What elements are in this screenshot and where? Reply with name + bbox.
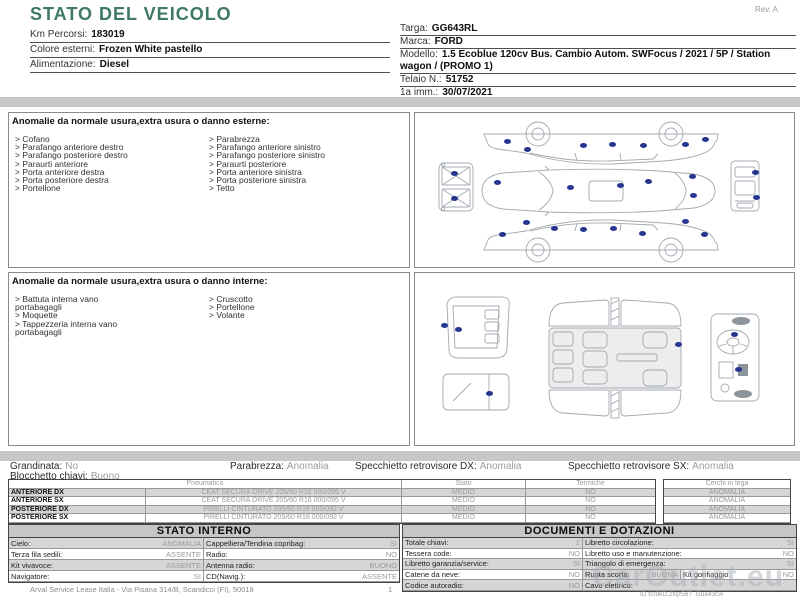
tyre-spec: PIRELLI CINTURATO 205/60 R16 000/092 V xyxy=(146,514,402,523)
damage-dot xyxy=(486,391,493,396)
field-label: Colore esterni: xyxy=(30,44,95,55)
anomaly-item: Portellone xyxy=(15,184,128,192)
field-libretto-uso: Libretto uso e manutenzione:NO xyxy=(583,549,796,559)
field-label: Libretto uso e manutenzione: xyxy=(585,549,682,558)
damage-dot xyxy=(455,327,462,332)
internal-anomalies-col2: Cruscotto Portellone Volante xyxy=(209,295,255,320)
field-marca: Marca:FORD xyxy=(400,36,796,49)
tyre-termiche: NO xyxy=(526,514,655,523)
field-libretto-garanzia: Libretto garanzia/service:SI xyxy=(403,559,583,569)
field-totale-chiavi: Totale chiavi:2 xyxy=(403,538,583,548)
field-radio: Radio:NO xyxy=(204,549,399,559)
damage-dot xyxy=(580,143,587,148)
field-label: Terza fila sedili: xyxy=(11,550,62,559)
table-row: Tessera code:NO Libretto uso e manutenzi… xyxy=(403,549,796,560)
tyre-position: ANTERIORE DX xyxy=(9,489,146,498)
tyre-spec: CEAT SECURA DRIVE 205/60 R16 000/095 V xyxy=(146,489,402,498)
anomaly-item: Tappezzeria interna vano portabagagli xyxy=(15,320,147,336)
field-value: Anomalia xyxy=(692,461,734,472)
field-value: NO xyxy=(783,549,794,558)
field-value: SI xyxy=(194,572,201,581)
field-label: Cielo: xyxy=(11,539,30,548)
field-terza-fila: Terza fila sedili:ASSENTE xyxy=(9,549,204,559)
field-label: Alimentazione: xyxy=(30,59,96,70)
document-id-note: ID tcr9kD.2fqz567 .Gua43cw xyxy=(640,591,723,598)
divider-bar xyxy=(0,97,800,107)
field-label: Km Percorsi: xyxy=(30,29,87,40)
damage-dot xyxy=(580,227,587,232)
field-cd-navig: CD(Navig.):ASSENTE xyxy=(204,571,399,581)
table-row: Cielo:ANOMALIA Cappelliera/Tendina copri… xyxy=(9,538,399,549)
damage-dot xyxy=(735,367,742,372)
damage-dot xyxy=(504,139,511,144)
cerchi-in-lega-table: Cerchi in lega ANOMALIA ANOMALIA ANOMALI… xyxy=(663,479,791,524)
field-tessera-code: Tessera code:NO xyxy=(403,549,583,559)
field-value: ASSENTE xyxy=(362,572,397,581)
car-interior-diagram-icon xyxy=(415,273,794,445)
field-modello: Modello:1.5 Ecoblue 120cv Bus. Cambio Au… xyxy=(400,49,796,74)
stato-interno-header: STATO INTERNO xyxy=(9,525,399,538)
field-label: Catene da neve: xyxy=(405,570,460,579)
field-value: NO xyxy=(569,549,580,558)
damage-dot xyxy=(524,147,531,152)
external-anomalies-col1: Cofano Parafango anteriore destro Parafa… xyxy=(15,135,128,192)
field-value: GG643RL xyxy=(432,23,478,34)
field-label: Totale chiavi: xyxy=(405,538,448,547)
tyre-position: POSTERIORE SX xyxy=(9,514,146,523)
internal-anomalies-col1: Battuta interna vano portabagagli Moquet… xyxy=(15,295,147,336)
exterior-damage-diagram xyxy=(414,112,795,268)
caroutlet-watermark: CarOutlet.eu xyxy=(592,560,784,594)
field-catene-neve: Catene da neve:NO xyxy=(403,570,583,580)
car-exterior-diagram-icon xyxy=(415,113,794,267)
field-navigatore: Navigatore:SI xyxy=(9,571,204,581)
field-telaio: Telaio N.:51752 xyxy=(400,74,796,87)
column-header-stato: Stato xyxy=(402,480,526,489)
damage-dot xyxy=(567,185,574,190)
column-header-cerchi: Cerchi in lega xyxy=(664,480,790,489)
field-label: CD(Navig.): xyxy=(206,572,245,581)
footer-company: Arval Service Lease Italia - Via Pisana … xyxy=(30,585,254,594)
page-number: 1 xyxy=(388,585,392,594)
interior-damage-diagram xyxy=(414,272,795,446)
field-value: SI xyxy=(390,539,397,548)
field-value: 183019 xyxy=(91,29,124,40)
field-label: Specchietto retrovisore SX: xyxy=(568,461,689,472)
vehicle-info-left: Km Percorsi:183019 Colore esterni:Frozen… xyxy=(30,28,390,73)
damage-dot xyxy=(752,170,759,175)
damage-dot xyxy=(639,231,646,236)
field-value: NO xyxy=(569,581,580,590)
tyre-stato: MEDIO xyxy=(402,489,526,498)
damage-dot xyxy=(702,137,709,142)
vehicle-info-right: Targa:GG643RL Marca:FORD Modello:1.5 Eco… xyxy=(400,23,796,100)
anomaly-item: Tetto xyxy=(209,184,325,192)
damage-dot xyxy=(753,195,760,200)
field-value: Anomalia xyxy=(480,461,522,472)
documenti-dotazioni-header: DOCUMENTI E DOTAZIONI xyxy=(403,525,796,538)
anomaly-item: Battuta interna vano portabagagli xyxy=(15,295,147,311)
damage-dot xyxy=(690,193,697,198)
field-label: Parabrezza: xyxy=(230,461,284,472)
cerchi-value: ANOMALIA xyxy=(664,514,790,523)
field-alimentazione: Alimentazione:Diesel xyxy=(30,58,390,73)
damage-dot xyxy=(441,323,448,328)
field-km-percorsi: Km Percorsi:183019 xyxy=(30,28,390,43)
field-label: Tessera code: xyxy=(405,549,452,558)
cerchi-value: ANOMALIA xyxy=(664,497,790,506)
tyre-termiche: NO xyxy=(526,489,655,498)
damage-dot xyxy=(675,342,682,347)
field-cappelliera: Cappelliera/Tendina copribag:SI xyxy=(204,538,399,548)
field-label: Modello: xyxy=(400,49,438,60)
tyre-termiche: NO xyxy=(526,497,655,506)
field-specchietto-dx: Specchietto retrovisore DX:Anomalia xyxy=(355,461,521,472)
tyre-position: POSTERIORE DX xyxy=(9,506,146,515)
damage-dot xyxy=(731,332,738,337)
damage-dot xyxy=(645,179,652,184)
table-row: Navigatore:SI CD(Navig.):ASSENTE xyxy=(9,571,399,582)
cerchi-value: ANOMALIA xyxy=(664,489,790,498)
field-antenna-radio: Antenna radio:BUONO xyxy=(204,560,399,570)
field-value: 51752 xyxy=(446,74,474,85)
damage-dot xyxy=(494,180,501,185)
table-row: Kit vivavoce:ASSENTE Antenna radio:BUONO xyxy=(9,560,399,571)
anomaly-item: Volante xyxy=(209,311,255,319)
external-anomalies-col2: Parabrezza Parafango anteriore sinistro … xyxy=(209,135,325,192)
field-value: NO xyxy=(783,570,794,579)
field-value: ASSENTE xyxy=(166,550,201,559)
field-label: Radio: xyxy=(206,550,228,559)
tyre-table-area: Pneumatico Stato Termiche ANTERIORE DX C… xyxy=(8,479,791,524)
field-cielo: Cielo:ANOMALIA xyxy=(9,538,204,548)
field-value: SI xyxy=(573,559,580,568)
field-value: Diesel xyxy=(100,59,129,70)
field-label: Marca: xyxy=(400,36,431,47)
vehicle-report-page: Rev. A STATO DEL VEICOLO Km Percorsi:183… xyxy=(0,0,800,600)
field-value: BUONO xyxy=(369,561,397,570)
damage-dot xyxy=(610,226,617,231)
field-targa: Targa:GG643RL xyxy=(400,23,796,36)
internal-anomalies-heading: Anomalie da normale usura,extra usura o … xyxy=(12,276,409,287)
tyre-stato: MEDIO xyxy=(402,497,526,506)
field-value: NO xyxy=(386,550,397,559)
damage-dot xyxy=(451,196,458,201)
column-header-termiche: Termiche xyxy=(526,480,655,489)
field-specchietto-sx: Specchietto retrovisore SX:Anomalia xyxy=(568,461,734,472)
tyre-stato: MEDIO xyxy=(402,506,526,515)
field-label: Codice autoradio: xyxy=(405,581,464,590)
field-value: 2 xyxy=(576,538,580,547)
field-parabrezza: Parabrezza:Anomalia xyxy=(230,461,329,472)
field-value: NO xyxy=(569,570,580,579)
damage-dot xyxy=(682,142,689,147)
tyre-termiche: NO xyxy=(526,506,655,515)
external-anomalies-heading: Anomalie da normale usura,extra usura o … xyxy=(12,116,409,127)
damage-dot xyxy=(451,171,458,176)
field-libretto-circolazione: Libretto circolazione:SI xyxy=(583,538,796,548)
field-label: Antenna radio: xyxy=(206,561,255,570)
field-label: Targa: xyxy=(400,23,428,34)
tyre-table: Pneumatico Stato Termiche ANTERIORE DX C… xyxy=(8,479,656,524)
field-value: Frozen White pastello xyxy=(99,44,202,55)
field-value: FORD xyxy=(435,36,463,47)
table-row: Totale chiavi:2 Libretto circolazione:SI xyxy=(403,538,796,549)
damage-dot xyxy=(523,220,530,225)
damage-dot xyxy=(682,219,689,224)
field-value: Anomalia xyxy=(287,461,329,472)
tyre-position: ANTERIORE SX xyxy=(9,497,146,506)
internal-anomalies-box: Anomalie da normale usura,extra usura o … xyxy=(8,272,410,446)
field-value: 1.5 Ecoblue 120cv Bus. Cambio Autom. SWF… xyxy=(400,49,770,72)
field-label: Cappelliera/Tendina copribag: xyxy=(206,539,305,548)
tyre-spec: CEAT SECURA DRIVE 205/60 R16 000/095 V xyxy=(146,497,402,506)
damage-dot xyxy=(499,232,506,237)
field-value: ANOMALIA xyxy=(162,539,201,548)
tyre-stato: MEDIO xyxy=(402,514,526,523)
external-anomalies-box: Anomalie da normale usura,extra usura o … xyxy=(8,112,410,268)
field-value: SI xyxy=(787,538,794,547)
damage-dot xyxy=(609,142,616,147)
revision-label: Rev. A xyxy=(755,5,778,14)
field-value: ASSENTE xyxy=(166,561,201,570)
column-header-pneumatico: Pneumatico xyxy=(9,480,402,489)
table-row: Terza fila sedili:ASSENTE Radio:NO xyxy=(9,549,399,560)
cerchi-value: ANOMALIA xyxy=(664,506,790,515)
damage-dot xyxy=(701,232,708,237)
stato-interno-table: STATO INTERNO Cielo:ANOMALIA Cappelliera… xyxy=(8,524,400,583)
divider-bar xyxy=(0,451,800,461)
field-kit-vivavoce: Kit vivavoce:ASSENTE xyxy=(9,560,204,570)
field-label: Libretto circolazione: xyxy=(585,538,654,547)
field-codice-autoradio: Codice autoradio:NO xyxy=(403,580,583,590)
field-label: Libretto garanzia/service: xyxy=(405,559,489,568)
damage-dot xyxy=(640,143,647,148)
field-label: Telaio N.: xyxy=(400,74,442,85)
field-label: Kit vivavoce: xyxy=(11,561,53,570)
field-colore-esterni: Colore esterni:Frozen White pastello xyxy=(30,43,390,58)
field-label: Specchietto retrovisore DX: xyxy=(355,461,477,472)
damage-dot xyxy=(551,226,558,231)
tyre-spec: PIRELLI CINTURATO 205/60 R16 000/092 V xyxy=(146,506,402,515)
damage-dot xyxy=(689,174,696,179)
damage-dot xyxy=(617,183,624,188)
field-label: Navigatore: xyxy=(11,572,49,581)
page-title: STATO DEL VEICOLO xyxy=(30,4,232,25)
field-value: SI xyxy=(787,559,794,568)
